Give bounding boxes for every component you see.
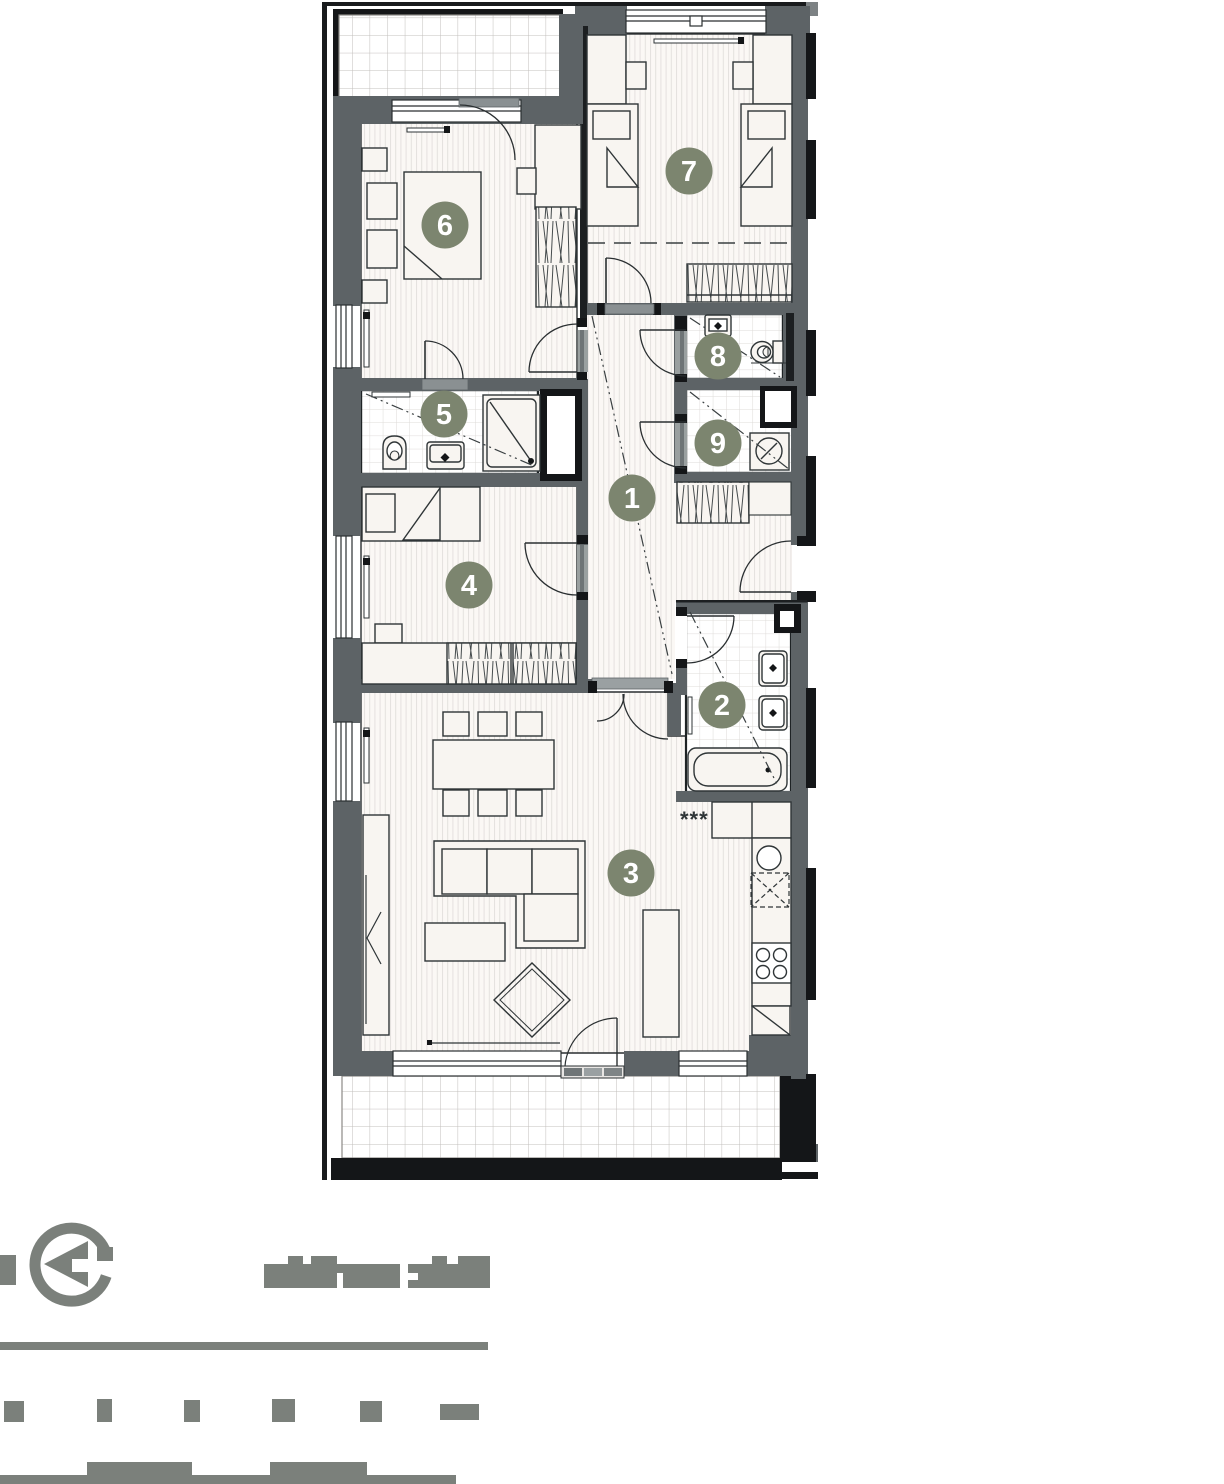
svg-text:9: 9	[710, 428, 726, 460]
svg-text:***: ***	[680, 807, 709, 832]
svg-text:6: 6	[437, 210, 453, 242]
svg-text:1: 1	[624, 483, 640, 515]
svg-text:2: 2	[714, 690, 730, 722]
svg-text:8: 8	[710, 341, 726, 373]
svg-text:5: 5	[436, 399, 452, 431]
svg-text:3: 3	[623, 858, 639, 890]
svg-text:4: 4	[461, 570, 477, 602]
svg-text:7: 7	[681, 156, 697, 188]
